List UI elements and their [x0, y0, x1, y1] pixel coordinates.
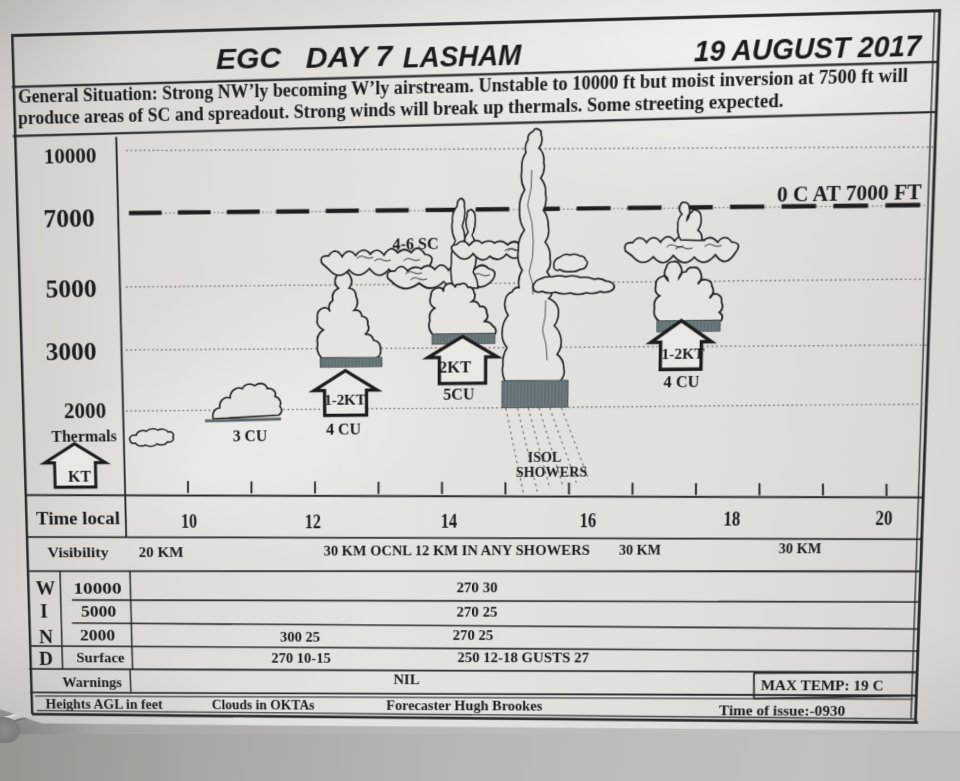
svg-text:4 CU: 4 CU — [663, 371, 699, 391]
svg-text:Heights AGL in feet: Heights AGL in feet — [45, 697, 162, 713]
svg-text:ISOL: ISOL — [528, 449, 562, 465]
svg-text:270 10-15: 270 10-15 — [271, 651, 331, 667]
svg-text:I: I — [40, 600, 48, 623]
svg-text:2KT: 2KT — [439, 358, 472, 378]
svg-text:Time of issue:-0930: Time of issue:-0930 — [719, 704, 846, 720]
svg-text:MAX TEMP: 19 C: MAX TEMP: 19 C — [761, 677, 884, 694]
svg-text:3 CU: 3 CU — [233, 426, 268, 445]
svg-text:KT: KT — [68, 467, 92, 486]
svg-text:D: D — [39, 647, 54, 670]
svg-text:7000: 7000 — [43, 203, 95, 233]
svg-text:5CU: 5CU — [443, 385, 474, 404]
svg-text:10: 10 — [181, 511, 197, 533]
svg-text:10000: 10000 — [73, 579, 122, 597]
svg-text:Warnings: Warnings — [62, 675, 122, 691]
svg-text:30 KM: 30 KM — [778, 541, 821, 557]
svg-text:0 C AT 7000 FT: 0 C AT 7000 FT — [777, 179, 922, 207]
svg-text:Time local: Time local — [36, 509, 121, 530]
svg-text:4 CU: 4 CU — [326, 420, 361, 439]
svg-text:20 KM: 20 KM — [138, 545, 183, 561]
svg-text:20: 20 — [875, 508, 893, 530]
svg-text:EGC: EGC — [216, 42, 282, 75]
svg-text:5000: 5000 — [45, 274, 97, 304]
svg-text:1-2KT: 1-2KT — [324, 391, 366, 408]
svg-text:18: 18 — [723, 509, 740, 531]
svg-text:270 25: 270 25 — [453, 627, 494, 644]
svg-text:10000: 10000 — [43, 142, 96, 169]
svg-text:1-2KT: 1-2KT — [661, 345, 705, 363]
svg-text:Thermals: Thermals — [51, 427, 117, 446]
svg-text:12: 12 — [305, 511, 321, 533]
svg-text:300 25: 300 25 — [280, 629, 321, 645]
svg-text:Clouds in OKTAs: Clouds in OKTAs — [212, 698, 315, 714]
svg-text:2000: 2000 — [80, 626, 116, 644]
svg-text:270 30: 270 30 — [457, 580, 498, 597]
svg-text:250 12-18 GUSTS 27: 250 12-18 GUSTS 27 — [457, 650, 589, 667]
svg-text:30 KM: 30 KM — [619, 543, 662, 559]
svg-text:Forecaster Hugh Brookes: Forecaster Hugh Brookes — [386, 698, 542, 714]
svg-text:14: 14 — [441, 511, 457, 533]
svg-text:Surface: Surface — [76, 651, 125, 666]
svg-text:5000: 5000 — [81, 602, 117, 620]
svg-text:2000: 2000 — [64, 398, 107, 423]
svg-text:270 25: 270 25 — [457, 604, 498, 621]
svg-text:16: 16 — [580, 510, 597, 532]
svg-text:SHOWERS: SHOWERS — [516, 465, 588, 481]
svg-text:4-6 SC: 4-6 SC — [392, 234, 438, 254]
svg-text:Visibility: Visibility — [47, 545, 109, 561]
svg-text:NIL: NIL — [393, 672, 419, 688]
svg-text:30 KM OCNL 12 KM IN ANY SHOWER: 30 KM OCNL 12 KM IN ANY SHOWERS — [324, 543, 590, 559]
svg-text:DAY 7: DAY 7 — [306, 41, 395, 75]
svg-text:3000: 3000 — [45, 337, 97, 366]
svg-text:W: W — [36, 576, 56, 599]
svg-text:LASHAM: LASHAM — [403, 40, 522, 75]
svg-text:N: N — [39, 625, 54, 648]
svg-text:19 AUGUST 2017: 19 AUGUST 2017 — [694, 29, 924, 68]
